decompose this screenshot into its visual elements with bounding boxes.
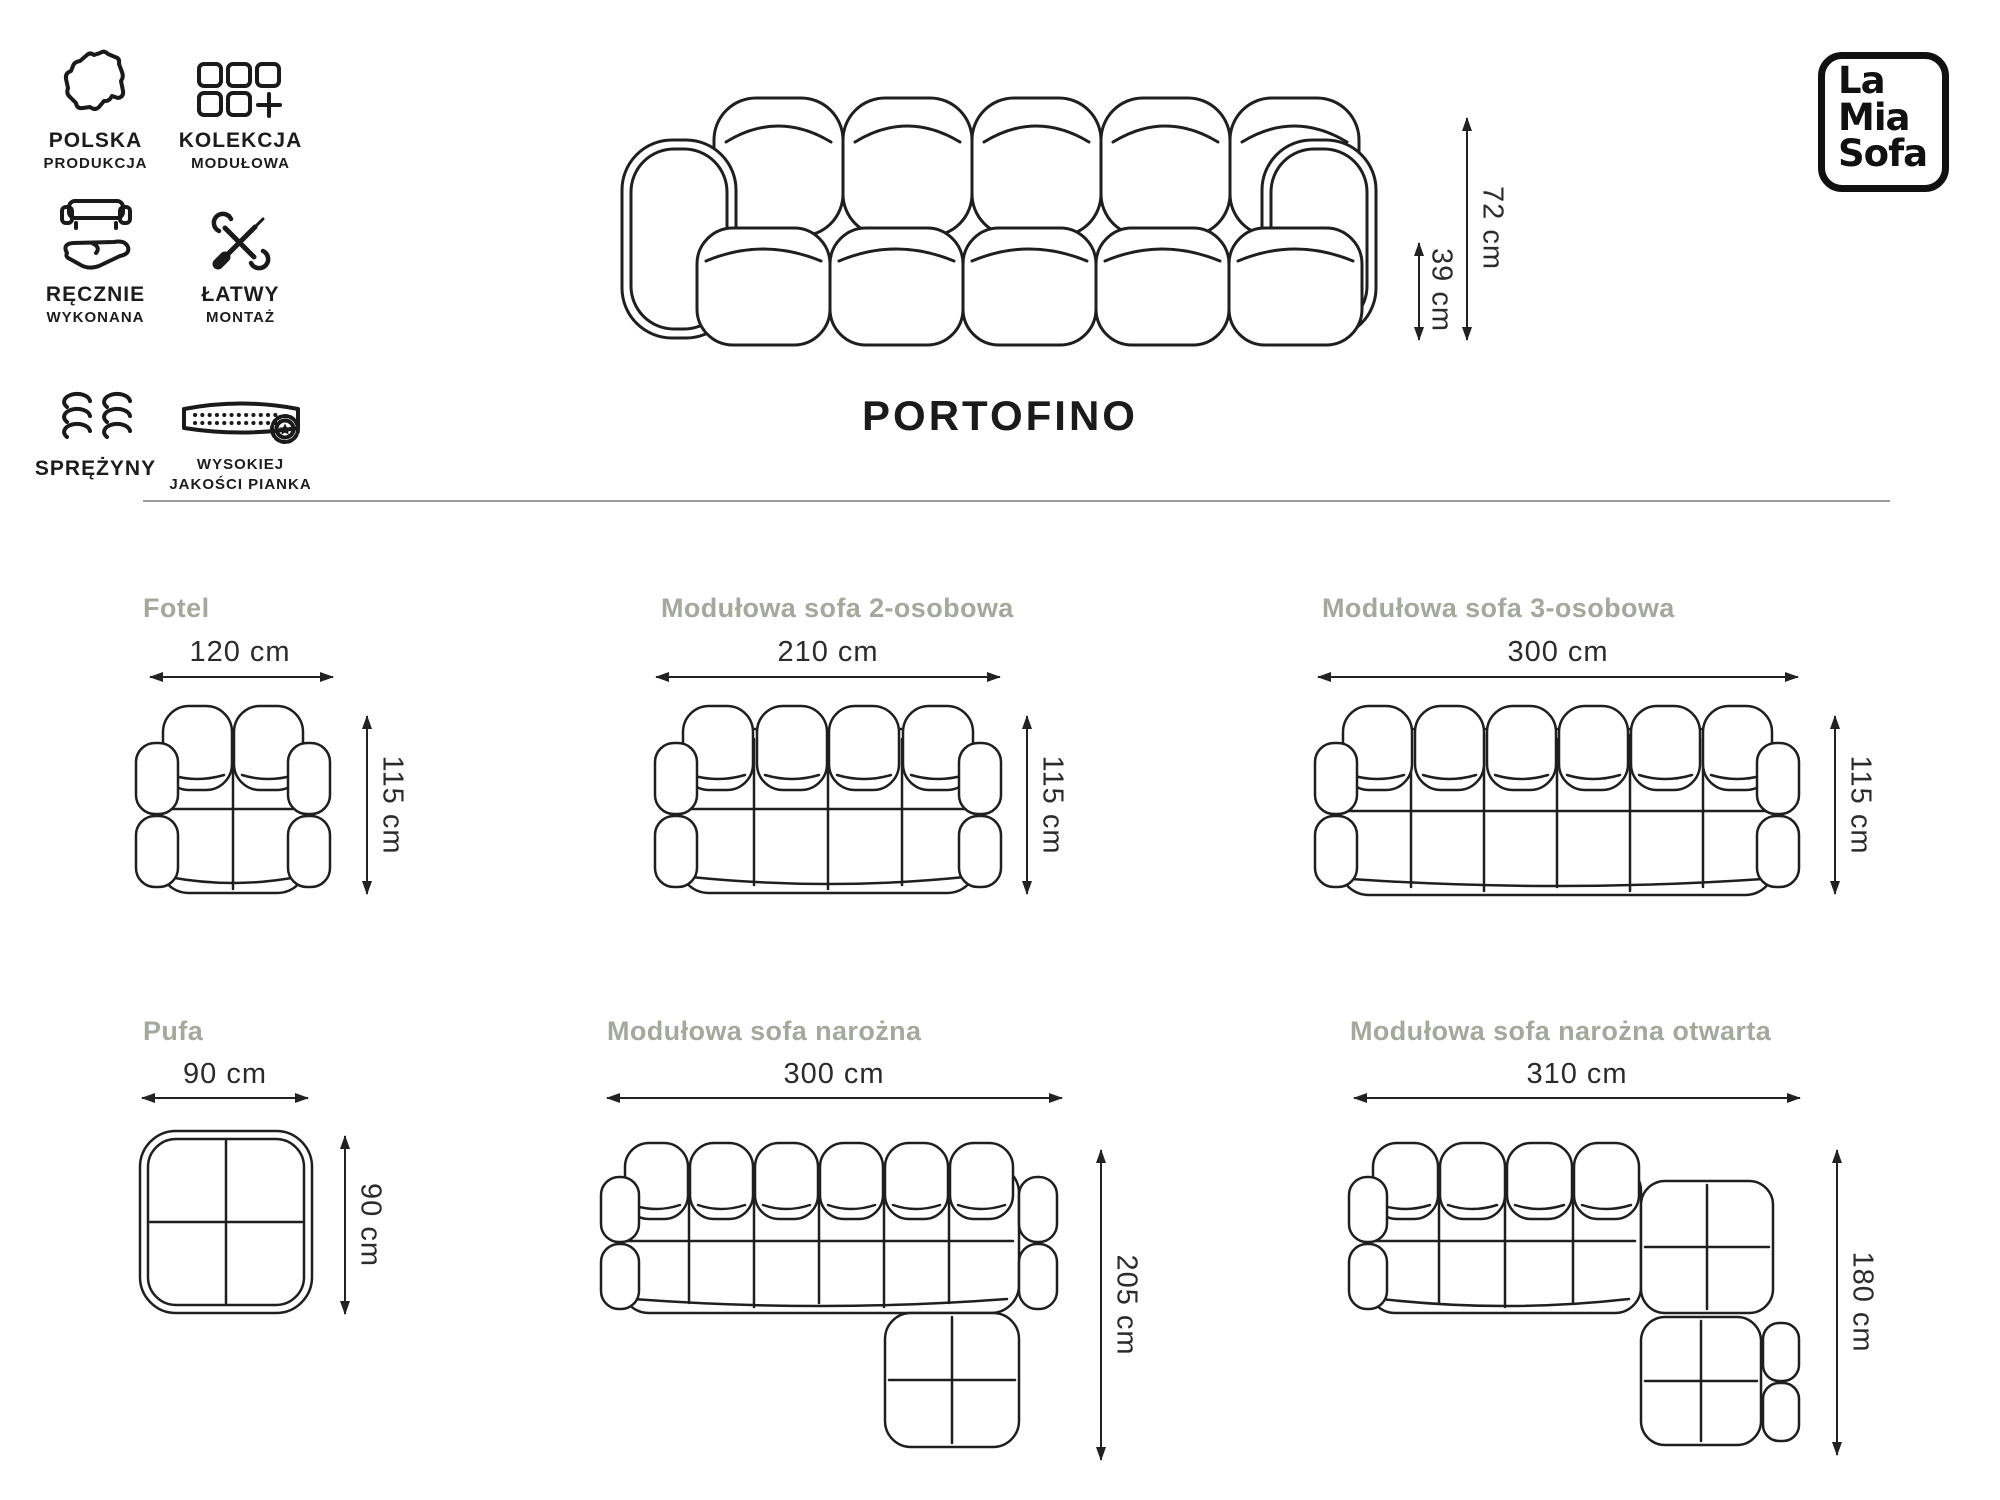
modular-collection-icon bbox=[197, 36, 285, 120]
easy-assembly-icon bbox=[208, 190, 274, 274]
divider-line bbox=[143, 500, 1890, 502]
poland-map-icon bbox=[59, 36, 133, 120]
width-arrow bbox=[1354, 1097, 1800, 1099]
depth-arrow bbox=[1836, 1150, 1838, 1455]
feature-kolekcja-modulowa: KOLEKCJA MODUŁOWA bbox=[148, 36, 333, 174]
width-arrow bbox=[150, 676, 333, 678]
total-height-arrow bbox=[1466, 118, 1468, 340]
feature-label: POLSKA bbox=[49, 128, 143, 153]
width-arrow bbox=[142, 1097, 308, 1099]
variant-name: Modułowa sofa 2-osobowa bbox=[661, 593, 1014, 624]
open-corner-sofa-top-view-drawing bbox=[1349, 1141, 1801, 1449]
feature-sublabel: MONTAŻ bbox=[206, 309, 275, 328]
logo-line-2: Mia bbox=[1838, 100, 1942, 137]
springs-icon bbox=[58, 364, 134, 448]
logo-line-1: La bbox=[1838, 63, 1942, 100]
variant-depth-value: 115 cm bbox=[1036, 756, 1069, 855]
feature-pianka: WYSOKIEJ JAKOŚCI PIANKA bbox=[148, 364, 333, 495]
total-height-value: 72 cm bbox=[1476, 186, 1509, 270]
variant-depth-value: 115 cm bbox=[1844, 756, 1877, 855]
feature-label: KOLEKCJA bbox=[179, 128, 303, 153]
sofa-2-top-view-drawing bbox=[653, 703, 1003, 898]
depth-arrow bbox=[366, 716, 368, 894]
feature-label: ŁATWY bbox=[201, 282, 279, 307]
variant-depth-value: 205 cm bbox=[1110, 1254, 1143, 1355]
feature-label: WYSOKIEJ bbox=[197, 456, 284, 474]
brand-logo: La Mia Sofa bbox=[1818, 52, 1949, 192]
variant-width-value: 120 cm bbox=[189, 636, 290, 669]
armchair-top-view-drawing bbox=[133, 703, 333, 898]
variant-width-value: 310 cm bbox=[1526, 1058, 1627, 1091]
handmade-icon bbox=[56, 190, 136, 274]
variant-depth-value: 115 cm bbox=[376, 756, 409, 855]
variant-depth-value: 180 cm bbox=[1846, 1251, 1879, 1352]
variant-name: Modułowa sofa narożna otwarta bbox=[1350, 1016, 1771, 1047]
depth-arrow bbox=[344, 1136, 346, 1314]
depth-arrow bbox=[1100, 1150, 1102, 1460]
feature-sublabel: MODUŁOWA bbox=[191, 155, 290, 174]
variant-width-value: 90 cm bbox=[183, 1058, 267, 1091]
width-arrow bbox=[1318, 676, 1798, 678]
variant-width-value: 300 cm bbox=[1507, 636, 1608, 669]
variant-name: Modułowa sofa 3-osobowa bbox=[1322, 593, 1675, 624]
feature-label: SPRĘŻYNY bbox=[35, 456, 156, 481]
seat-height-value: 39 cm bbox=[1425, 248, 1458, 332]
corner-sofa-top-view-drawing bbox=[601, 1141, 1057, 1463]
variant-depth-value: 90 cm bbox=[354, 1183, 387, 1267]
pouf-top-view-drawing bbox=[138, 1129, 314, 1315]
variant-width-value: 300 cm bbox=[783, 1058, 884, 1091]
feature-latwy-montaz: ŁATWY MONTAŻ bbox=[148, 190, 333, 328]
feature-label: RĘCZNIE bbox=[46, 282, 145, 307]
width-arrow bbox=[607, 1097, 1062, 1099]
feature-sublabel: WYKONANA bbox=[47, 309, 145, 328]
variant-name: Pufa bbox=[143, 1016, 203, 1047]
logo-line-3: Sofa bbox=[1838, 136, 1942, 173]
sofa-front-view-drawing bbox=[618, 88, 1380, 352]
depth-arrow bbox=[1834, 716, 1836, 894]
feature-sublabel: JAKOŚCI PIANKA bbox=[169, 476, 311, 495]
foam-quality-icon bbox=[178, 364, 304, 448]
seat-height-arrow bbox=[1418, 243, 1420, 340]
sofa-3-top-view-drawing bbox=[1313, 703, 1801, 899]
feature-sublabel: PRODUKCJA bbox=[43, 155, 147, 174]
page-title: PORTOFINO bbox=[862, 392, 1138, 440]
width-arrow bbox=[656, 676, 1000, 678]
variant-name: Fotel bbox=[143, 593, 210, 624]
variant-width-value: 210 cm bbox=[777, 636, 878, 669]
variant-name: Modułowa sofa narożna bbox=[607, 1016, 921, 1047]
depth-arrow bbox=[1026, 716, 1028, 894]
